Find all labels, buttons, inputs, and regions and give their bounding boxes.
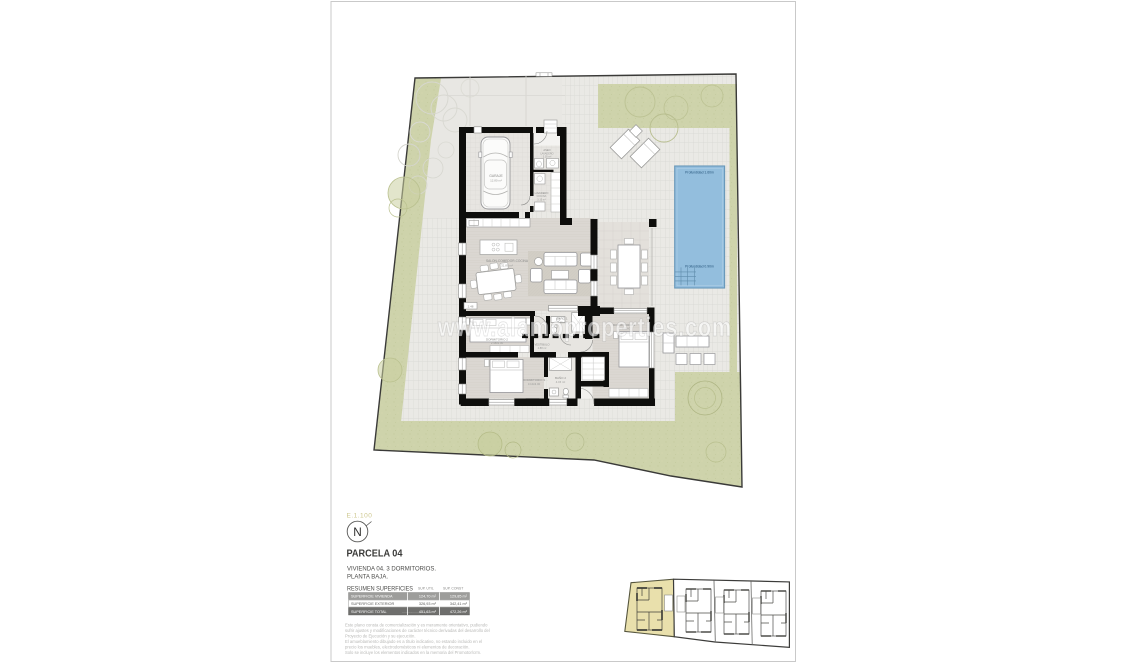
svg-text:SALON-COMEDOR-COCINA: SALON-COMEDOR-COCINA xyxy=(486,259,529,263)
svg-text:SUPERFICIE TOTAL: SUPERFICIE TOTAL xyxy=(351,610,387,614)
svg-text:El amueblamiento dibujado es a: El amueblamiento dibujado es a título in… xyxy=(345,639,482,644)
svg-text:Profundidad 0.90m: Profundidad 0.90m xyxy=(685,265,714,269)
svg-text:SUP. UTIL: SUP. UTIL xyxy=(418,587,434,591)
svg-text:www.alamoproperties.com: www.alamoproperties.com xyxy=(437,312,732,342)
svg-text:3.30 m²: 3.30 m² xyxy=(543,156,552,159)
svg-text:VIVIENDA 04. 3 DORMITORIOS.: VIVIENDA 04. 3 DORMITORIOS. xyxy=(347,566,436,573)
svg-text:12.80 m²: 12.80 m² xyxy=(490,178,502,182)
svg-text:GARAJE: GARAJE xyxy=(489,174,503,178)
svg-text:2.48: 2.48 xyxy=(468,304,474,308)
svg-text:sufrir ajustes y modificacione: sufrir ajustes y modificaciones de carác… xyxy=(345,628,490,633)
svg-text:RESUMEN SUPERFICIES: RESUMEN SUPERFICIES xyxy=(347,586,413,593)
svg-text:SUP. CONST: SUP. CONST xyxy=(443,587,463,591)
svg-text:326,93 m²: 326,93 m² xyxy=(419,602,437,606)
svg-text:472,26 m²: 472,26 m² xyxy=(450,610,468,614)
svg-text:SUPERFICIE VIVIENDA: SUPERFICIE VIVIENDA xyxy=(351,595,393,599)
svg-text:Solo se incluye los elementos: Solo se incluye los elementos indicados … xyxy=(345,650,481,655)
svg-text:3.10x3.00: 3.10x3.00 xyxy=(528,382,541,386)
svg-text:4.88 m²: 4.88 m² xyxy=(538,346,547,350)
svg-text:N: N xyxy=(353,525,362,539)
svg-text:129,85 m²: 129,85 m² xyxy=(450,595,468,599)
svg-text:PARCELA 04: PARCELA 04 xyxy=(347,549,403,560)
svg-text:31.80 m²: 31.80 m² xyxy=(501,263,513,267)
svg-text:SUPERFICIE EXTERIOR: SUPERFICIE EXTERIOR xyxy=(351,602,395,606)
svg-text:124,70 m²: 124,70 m² xyxy=(419,595,437,599)
svg-text:3.15 m²: 3.15 m² xyxy=(537,198,546,201)
svg-text:precio los muebles, electrodom: precio los muebles, electrodomésticos ni… xyxy=(345,645,470,650)
svg-text:VESTIBULO: VESTIBULO xyxy=(534,343,549,347)
svg-text:4.15 m²: 4.15 m² xyxy=(556,380,566,384)
svg-text:PLANTA BAJA.: PLANTA BAJA. xyxy=(347,574,388,581)
svg-text:451,63 m²: 451,63 m² xyxy=(419,610,437,614)
svg-text:Proyecto de Ejecución y su eje: Proyecto de Ejecución y su ejecución. xyxy=(345,634,416,639)
svg-text:Profundidad 1.60m: Profundidad 1.60m xyxy=(685,171,714,175)
svg-text:E.1.100: E.1.100 xyxy=(347,513,373,520)
svg-text:Este plano consta de comercial: Este plano consta de comercialización y … xyxy=(345,623,488,628)
svg-text:ASEO: ASEO xyxy=(543,148,550,152)
svg-text:342,41 m²: 342,41 m² xyxy=(450,602,468,606)
